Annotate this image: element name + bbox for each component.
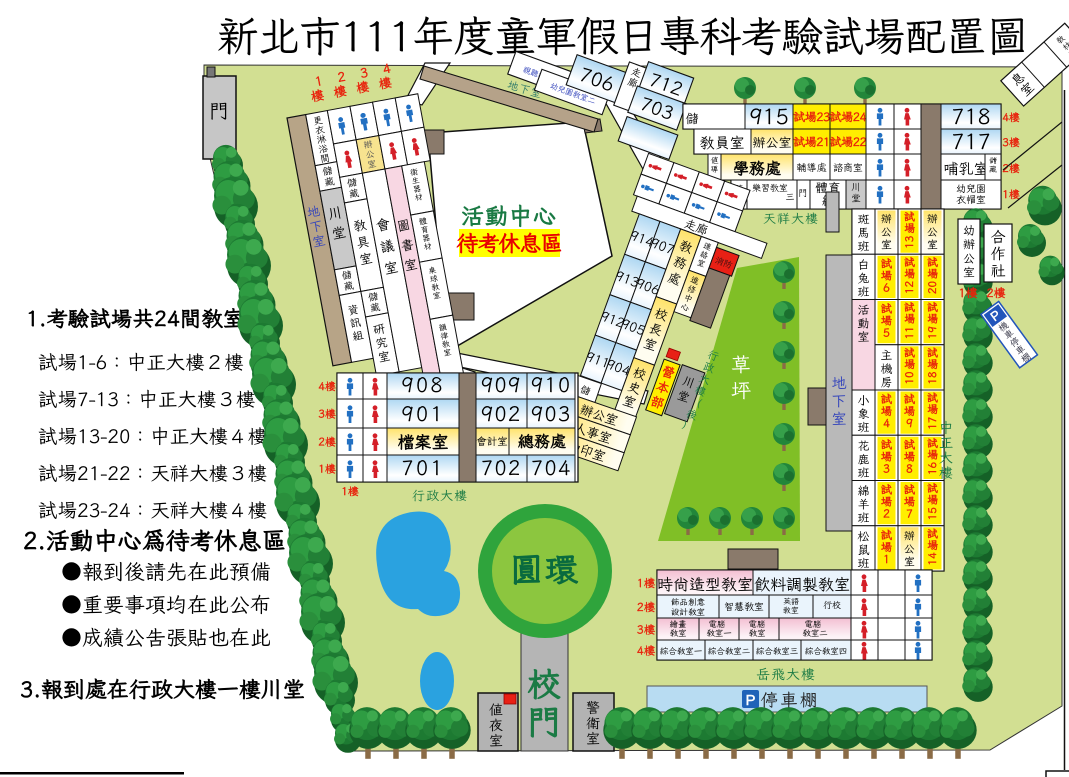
svg-text:門: 門 — [209, 97, 229, 124]
svg-text:公: 公 — [904, 542, 915, 556]
svg-text:場: 場 — [927, 313, 938, 327]
svg-text:綜合教室四: 綜合教室四 — [805, 646, 848, 657]
svg-text:堂: 堂 — [851, 191, 861, 204]
svg-text:1樓: 1樓 — [958, 286, 977, 301]
svg-text:場: 場 — [904, 222, 915, 236]
svg-text:7: 7 — [906, 507, 913, 522]
svg-text:3樓: 3樓 — [318, 408, 336, 422]
svg-text:1樓: 1樓 — [1002, 188, 1020, 202]
svg-text:9: 9 — [906, 416, 913, 431]
svg-text:場: 場 — [927, 403, 938, 417]
svg-text:坪: 坪 — [731, 377, 751, 404]
svg-text:藏: 藏 — [989, 165, 997, 175]
svg-text:18: 18 — [926, 371, 940, 384]
svg-text:辦: 辦 — [881, 213, 892, 227]
svg-text:草: 草 — [731, 351, 751, 378]
svg-text:樂習教室: 樂習教室 — [752, 182, 788, 194]
svg-text:2.活動中心為待考休息區: 2.活動中心為待考休息區 — [23, 524, 286, 556]
svg-text:1樓: 1樓 — [637, 576, 656, 591]
svg-text:總務處: 總務處 — [518, 430, 566, 452]
svg-text:行校: 行校 — [823, 599, 841, 611]
svg-text:三: 三 — [785, 191, 794, 203]
svg-text:2樓: 2樓 — [318, 436, 336, 450]
svg-text:圓環: 圓環 — [510, 548, 580, 591]
svg-text:待考休息區: 待考休息區 — [456, 229, 561, 258]
svg-text:6: 6 — [883, 280, 890, 295]
svg-text:教室: 教室 — [783, 606, 799, 616]
svg-text:試場21-22：天祥大樓３樓: 試場21-22：天祥大樓３樓 — [38, 460, 267, 486]
svg-text:場: 場 — [927, 358, 938, 372]
svg-text:辦公室: 辦公室 — [752, 134, 791, 151]
svg-text:門: 門 — [527, 699, 561, 744]
svg-text:室: 室 — [586, 729, 600, 747]
svg-text:12: 12 — [903, 281, 917, 294]
svg-text:3: 3 — [883, 461, 890, 476]
svg-text:教員室: 教員室 — [699, 134, 744, 153]
svg-text:場: 場 — [927, 448, 938, 462]
svg-text:17: 17 — [926, 417, 940, 430]
svg-text:3樓: 3樓 — [1002, 136, 1020, 150]
svg-text:702: 702 — [481, 453, 522, 481]
svg-text:試場23-24：天祥大樓４樓: 試場23-24：天祥大樓４樓 — [38, 497, 267, 523]
svg-text:P: P — [745, 691, 755, 710]
svg-text:樓: 樓 — [939, 463, 953, 481]
svg-text:辦: 辦 — [904, 529, 915, 543]
svg-text:班: 班 — [857, 466, 869, 481]
svg-text:辦: 辦 — [963, 238, 975, 253]
svg-text:輔導處: 輔導處 — [797, 161, 827, 174]
svg-text:4: 4 — [883, 416, 890, 431]
svg-text:儲: 儲 — [685, 110, 698, 127]
svg-text:活動中心: 活動中心 — [461, 200, 557, 231]
svg-text:試場24: 試場24 — [830, 110, 867, 125]
svg-text:3.報到處在行政大樓一樓川堂: 3.報到處在行政大樓一樓川堂 — [20, 675, 305, 704]
svg-text:室: 室 — [904, 555, 915, 569]
svg-text:房: 房 — [880, 375, 892, 390]
svg-text:岳飛大樓: 岳飛大樓 — [756, 665, 816, 683]
svg-text:設計教室: 設計教室 — [671, 607, 706, 618]
svg-text:19: 19 — [926, 326, 940, 340]
svg-text:班: 班 — [857, 421, 869, 436]
svg-text:室: 室 — [963, 266, 975, 281]
svg-text:導: 導 — [711, 165, 719, 175]
svg-text:場: 場 — [927, 494, 938, 508]
svg-text:2樓: 2樓 — [637, 600, 656, 615]
svg-text:●報到後請先在此預備: ●報到後請先在此預備 — [61, 557, 271, 585]
svg-text:會計室: 會計室 — [476, 434, 508, 448]
svg-text:試場23: 試場23 — [793, 110, 830, 125]
svg-text:室: 室 — [927, 239, 938, 253]
svg-text:13: 13 — [903, 236, 917, 249]
svg-text:4樓: 4樓 — [637, 644, 656, 659]
svg-text:4樓: 4樓 — [1002, 111, 1020, 125]
svg-text:幼: 幼 — [963, 224, 975, 239]
svg-text:●成績公告張貼也在此: ●成績公告張貼也在此 — [61, 623, 271, 651]
svg-text:1: 1 — [883, 552, 890, 567]
svg-text:2樓: 2樓 — [986, 286, 1005, 301]
svg-text:檔案室: 檔案室 — [398, 430, 449, 453]
svg-text:教室: 教室 — [669, 628, 687, 639]
svg-text:公: 公 — [881, 226, 892, 240]
svg-text:門: 門 — [798, 187, 807, 199]
svg-text:場: 場 — [927, 539, 938, 553]
svg-text:701: 701 — [401, 453, 445, 481]
svg-text:班: 班 — [857, 240, 869, 255]
svg-text:1.考驗試場共24間教室: 1.考驗試場共24間教室 — [26, 305, 244, 333]
svg-text:704: 704 — [531, 453, 572, 481]
svg-text:綜合教室一: 綜合教室一 — [660, 646, 703, 657]
svg-text:教室二: 教室二 — [802, 628, 828, 639]
svg-text:試場22: 試場22 — [830, 135, 867, 150]
svg-text:智慧教室: 智慧教室 — [724, 600, 764, 613]
svg-text:班: 班 — [857, 285, 869, 300]
svg-text:下: 下 — [831, 392, 846, 411]
svg-text:10: 10 — [903, 371, 917, 384]
svg-text:910: 910 — [531, 370, 572, 398]
svg-text:天祥大樓: 天祥大樓 — [763, 210, 819, 227]
svg-text:試場13-20：中正大樓４樓: 試場13-20：中正大樓４樓 — [38, 423, 267, 449]
svg-text:11: 11 — [903, 326, 917, 339]
svg-text:公: 公 — [963, 252, 975, 267]
svg-text:社: 社 — [990, 262, 1005, 281]
svg-text:場: 場 — [927, 267, 938, 281]
svg-text:717: 717 — [951, 127, 991, 156]
svg-text:室: 室 — [881, 239, 892, 253]
svg-text:學務處: 學務處 — [733, 157, 781, 179]
svg-text:地: 地 — [831, 374, 846, 393]
svg-text:試場7-13：中正大樓３樓: 試場7-13：中正大樓３樓 — [38, 386, 255, 412]
svg-text:班: 班 — [857, 511, 869, 526]
svg-text:辦: 辦 — [927, 213, 938, 227]
svg-text:教室一: 教室一 — [706, 628, 732, 639]
svg-text:公: 公 — [927, 226, 938, 240]
svg-text:新北市111年度童軍假日專科考驗試場配置圖: 新北市111年度童軍假日專科考驗試場配置圖 — [217, 8, 1028, 63]
svg-text:16: 16 — [926, 462, 940, 475]
svg-text:908: 908 — [401, 370, 445, 398]
svg-text:5: 5 — [883, 326, 890, 341]
svg-text:1樓: 1樓 — [318, 463, 336, 477]
svg-text:試場21: 試場21 — [793, 135, 829, 150]
svg-text:901: 901 — [401, 399, 445, 427]
svg-text:903: 903 — [531, 399, 572, 427]
svg-text:室: 室 — [489, 731, 503, 749]
svg-text:教室: 教室 — [748, 628, 766, 639]
svg-text:4樓: 4樓 — [318, 380, 336, 394]
svg-text:915: 915 — [749, 102, 789, 131]
svg-text:試場1-6：中正大樓２樓: 試場1-6：中正大樓２樓 — [38, 349, 244, 375]
svg-text:時尚造型教室: 時尚造型教室 — [657, 573, 753, 595]
svg-text:綜合教室二: 綜合教室二 — [708, 646, 751, 657]
svg-text:場: 場 — [904, 267, 915, 281]
svg-text:衣帽室: 衣帽室 — [956, 193, 986, 206]
svg-text:綜合教室三: 綜合教室三 — [756, 646, 799, 657]
svg-text:飲料調製教室: 飲料調製教室 — [754, 573, 850, 595]
svg-text:●重要事項均在此公布: ●重要事項均在此公布 — [61, 590, 271, 618]
svg-text:室: 室 — [831, 410, 846, 429]
svg-text:902: 902 — [481, 399, 522, 427]
svg-text:場: 場 — [904, 313, 915, 327]
svg-text:場: 場 — [904, 358, 915, 372]
svg-text:行政大樓: 行政大樓 — [412, 487, 468, 504]
svg-text:班: 班 — [857, 556, 869, 571]
svg-text:2: 2 — [883, 507, 890, 522]
svg-text:室: 室 — [857, 330, 869, 345]
svg-text:諮商室: 諮商室 — [833, 161, 863, 174]
svg-text:1樓: 1樓 — [341, 485, 359, 499]
svg-text:20: 20 — [926, 281, 940, 294]
svg-text:15: 15 — [926, 507, 940, 520]
svg-text:3樓: 3樓 — [637, 623, 656, 638]
svg-text:14: 14 — [926, 552, 940, 566]
svg-text:哺乳室: 哺乳室 — [943, 160, 988, 179]
svg-text:909: 909 — [481, 370, 522, 398]
svg-text:8: 8 — [906, 461, 913, 476]
